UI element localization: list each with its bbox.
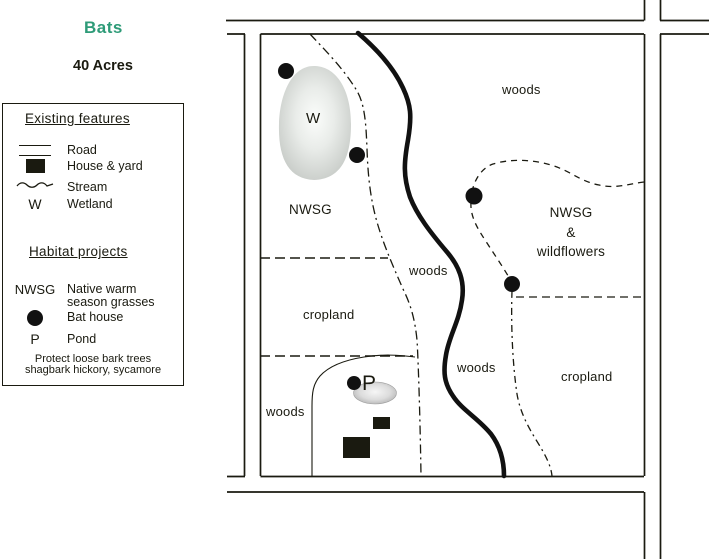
legend-habitat-heading: Habitat projects [29,244,128,259]
legend-label-wetland: Wetland [67,197,113,211]
shed-square [373,417,390,429]
nwsg-wildflowers-boundary-left [471,202,511,281]
house-square [343,437,370,458]
map-label-woods-northeast: woods [502,83,541,97]
nwsg-wildflowers-line1: NWSG [550,205,593,220]
legend-row-road: Road [3,143,183,157]
pond-symbol: P [30,332,39,347]
nwsg-wildflowers-boundary-top [472,160,644,192]
map-label-woods-southwest: woods [266,405,305,419]
nwsg-symbol: NWSG [15,282,55,297]
legend-row-stream: Stream [3,180,183,194]
bat-house-dot [278,63,294,79]
map-label-nwsg-west: NWSG [289,203,332,217]
legend-label-pond: Pond [67,332,96,346]
map-label-cropland-west: cropland [303,308,354,322]
habitat-plan-page: Bats 40 Acres [0,0,709,559]
legend-row-nwsg: NWSG Native warm season grasses [3,282,183,309]
legend-label-house: House & yard [67,159,143,173]
nwsg-wildflowers-line3: wildflowers [537,244,605,259]
legend-existing-heading: Existing features [25,111,130,126]
protect-note-line2: shagbark hickory, sycamore [25,364,161,376]
legend-row-pond: P Pond [3,332,183,347]
map-label-woods-south: woods [457,361,496,375]
stream-line [358,33,504,476]
stream-symbol [15,180,55,190]
road-symbol [19,145,51,156]
wetland-letter: W [306,112,320,126]
legend-label-stream: Stream [67,180,107,194]
bat-house-dot [466,188,483,205]
map-label-woods-center: woods [409,264,448,278]
legend-label-nwsg: Native warm season grasses [67,282,171,309]
legend-row-bat-house: Bat house [3,310,183,326]
nwsg-wildflowers-line2: & [566,225,575,240]
map-label-cropland-southeast: cropland [561,370,612,384]
legend-box: Existing features Road House & yard Stre… [2,103,184,386]
bat-house-dot [347,376,361,390]
bat-house-symbol [27,310,43,326]
bat-house-dot [504,276,520,292]
bat-house-dot [349,147,365,163]
legend-protect-note: Protect loose bark trees shagbark hickor… [3,354,183,376]
woods-boundary-east-dashed [512,291,552,476]
legend-label-bat-house: Bat house [67,310,123,324]
wetland-symbol: W [28,197,41,212]
legend-row-wetland: W Wetland [3,197,183,212]
pond-letter: P [362,377,376,391]
legend-label-road: Road [67,143,97,157]
house-symbol [26,159,45,173]
legend-row-house: House & yard [3,159,183,173]
map-label-nwsg-wildflowers: NWSG & wildflowers [516,203,626,262]
